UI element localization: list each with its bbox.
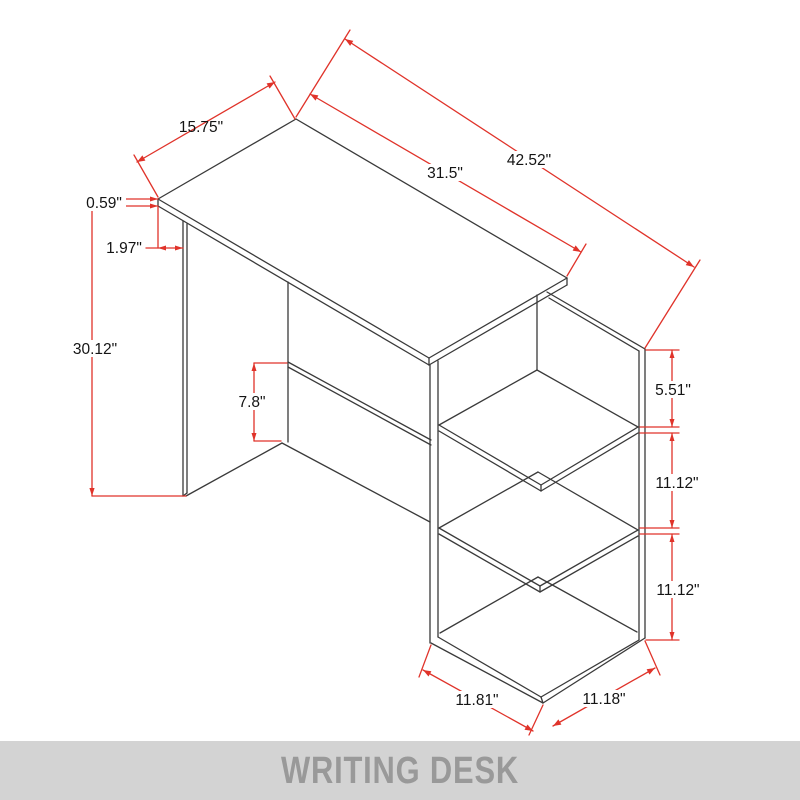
dim-label-shelf-gap-top: 5.51"	[655, 382, 691, 399]
dim-label-base-depth: 11.18"	[582, 691, 625, 708]
dim-label-shelf-gap-middle: 11.12"	[655, 475, 698, 492]
page-title: WRITING DESK	[281, 750, 519, 792]
writing-desk-dimension-diagram: 15.75" 31.5" 42.52" 0.59" 1.97" 30.12" 7…	[0, 0, 800, 800]
dim-label-shelf-gap-bottom: 11.12"	[656, 582, 699, 599]
dimension-arrowheads	[89, 39, 694, 731]
dim-label-total-width: 42.52"	[507, 152, 551, 169]
back-panel	[282, 282, 431, 522]
dim-label-top-thickness: 0.59"	[86, 195, 122, 212]
dim-label-desktop-width: 31.5"	[427, 165, 463, 182]
dim-label-back-panel: 7.8"	[238, 394, 265, 411]
desk-diagram-svg: 15.75" 31.5" 42.52" 0.59" 1.97" 30.12" 7…	[0, 0, 800, 800]
title-banner: WRITING DESK	[0, 741, 800, 800]
dim-label-top-depth: 15.75"	[179, 119, 223, 136]
dim-label-base-width: 11.81"	[455, 692, 498, 709]
dimension-lines	[92, 39, 694, 731]
shelf-unit-base	[431, 577, 645, 703]
dimension-labels: 15.75" 31.5" 42.52" 0.59" 1.97" 30.12" 7…	[73, 119, 700, 709]
dim-label-overhang: 1.97"	[106, 240, 142, 257]
left-side-panel	[183, 221, 282, 496]
label-masks	[68, 151, 704, 708]
desk-structure-lines	[158, 119, 645, 703]
dim-label-height: 30.12"	[73, 341, 117, 358]
